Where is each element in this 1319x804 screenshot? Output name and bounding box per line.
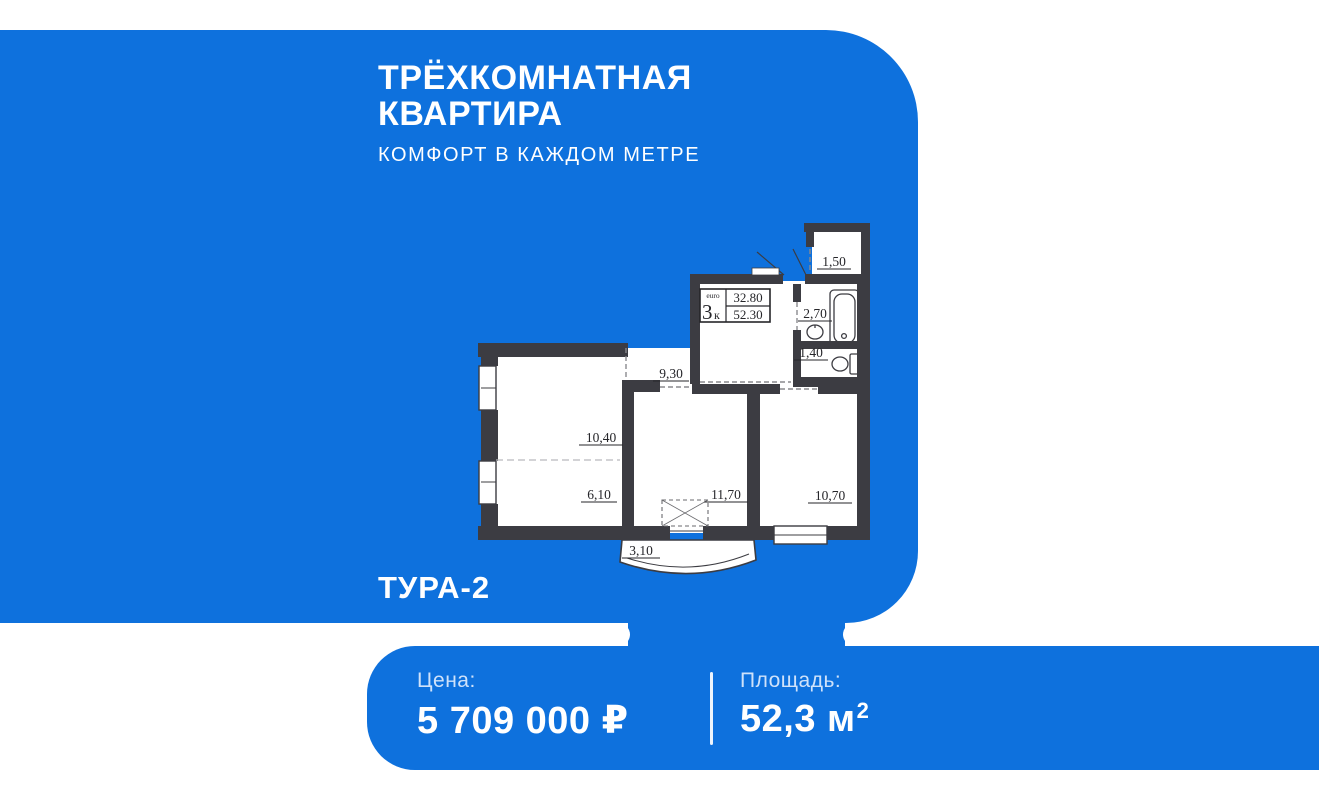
price-block: Цена: 5 709 000 ₽ bbox=[417, 669, 629, 743]
window-bottom-right bbox=[774, 526, 827, 544]
connector-neck bbox=[628, 598, 845, 652]
apartment-stamp: euro 3 к 32.80 52.30 bbox=[700, 289, 770, 324]
stamp-rooms-digit: 3 bbox=[702, 300, 713, 324]
area-storage: 1,50 bbox=[822, 254, 846, 269]
window-left-bottom bbox=[479, 461, 496, 504]
stamp-rooms-letter: к bbox=[714, 308, 720, 322]
white-gap-left bbox=[372, 623, 630, 646]
area-label: Площадь: bbox=[740, 669, 868, 693]
title-line-1: ТРЁХКОМНАТНАЯ bbox=[378, 60, 692, 96]
area-value: 52,3 м2 bbox=[740, 698, 868, 741]
page-title: ТРЁХКОМНАТНАЯ КВАРТИРА bbox=[378, 60, 692, 132]
area-bathroom: 2,70 bbox=[803, 306, 827, 321]
area-hallway: 9,30 bbox=[659, 366, 683, 381]
title-line-2: КВАРТИРА bbox=[378, 96, 692, 132]
floor-plan: euro 3 к 32.80 52.30 1,50 2,70 1,40 9,30… bbox=[455, 215, 885, 590]
plan-name: ТУРА-2 bbox=[378, 570, 490, 606]
stamp-upper-area: 32.80 bbox=[733, 290, 762, 305]
stamp-lower-area: 52.30 bbox=[733, 307, 762, 322]
area-room-six: 6,10 bbox=[587, 487, 611, 502]
area-bedroom-center: 11,70 bbox=[711, 487, 741, 502]
area-balcony: 3,10 bbox=[629, 543, 653, 558]
area-value-sup: 2 bbox=[857, 698, 870, 723]
stamp-tag: euro bbox=[706, 291, 720, 300]
area-bedroom-right: 10,70 bbox=[815, 488, 846, 503]
area-value-number: 52,3 м bbox=[740, 698, 856, 740]
white-gap-right bbox=[843, 623, 983, 646]
entrance-threshold bbox=[752, 268, 779, 275]
area-wc: 1,40 bbox=[799, 345, 823, 360]
area-kitchen-living: 10,40 bbox=[586, 430, 617, 445]
footer-divider bbox=[710, 672, 713, 745]
price-label: Цена: bbox=[417, 669, 629, 693]
window-left-top bbox=[479, 366, 496, 410]
flyer-page: ТРЁХКОМНАТНАЯ КВАРТИРА КОМФОРТ В КАЖДОМ … bbox=[0, 0, 1319, 804]
price-value: 5 709 000 ₽ bbox=[417, 698, 629, 743]
area-block: Площадь: 52,3 м2 bbox=[740, 669, 868, 741]
page-subtitle: КОМФОРТ В КАЖДОМ МЕТРЕ bbox=[378, 144, 700, 167]
